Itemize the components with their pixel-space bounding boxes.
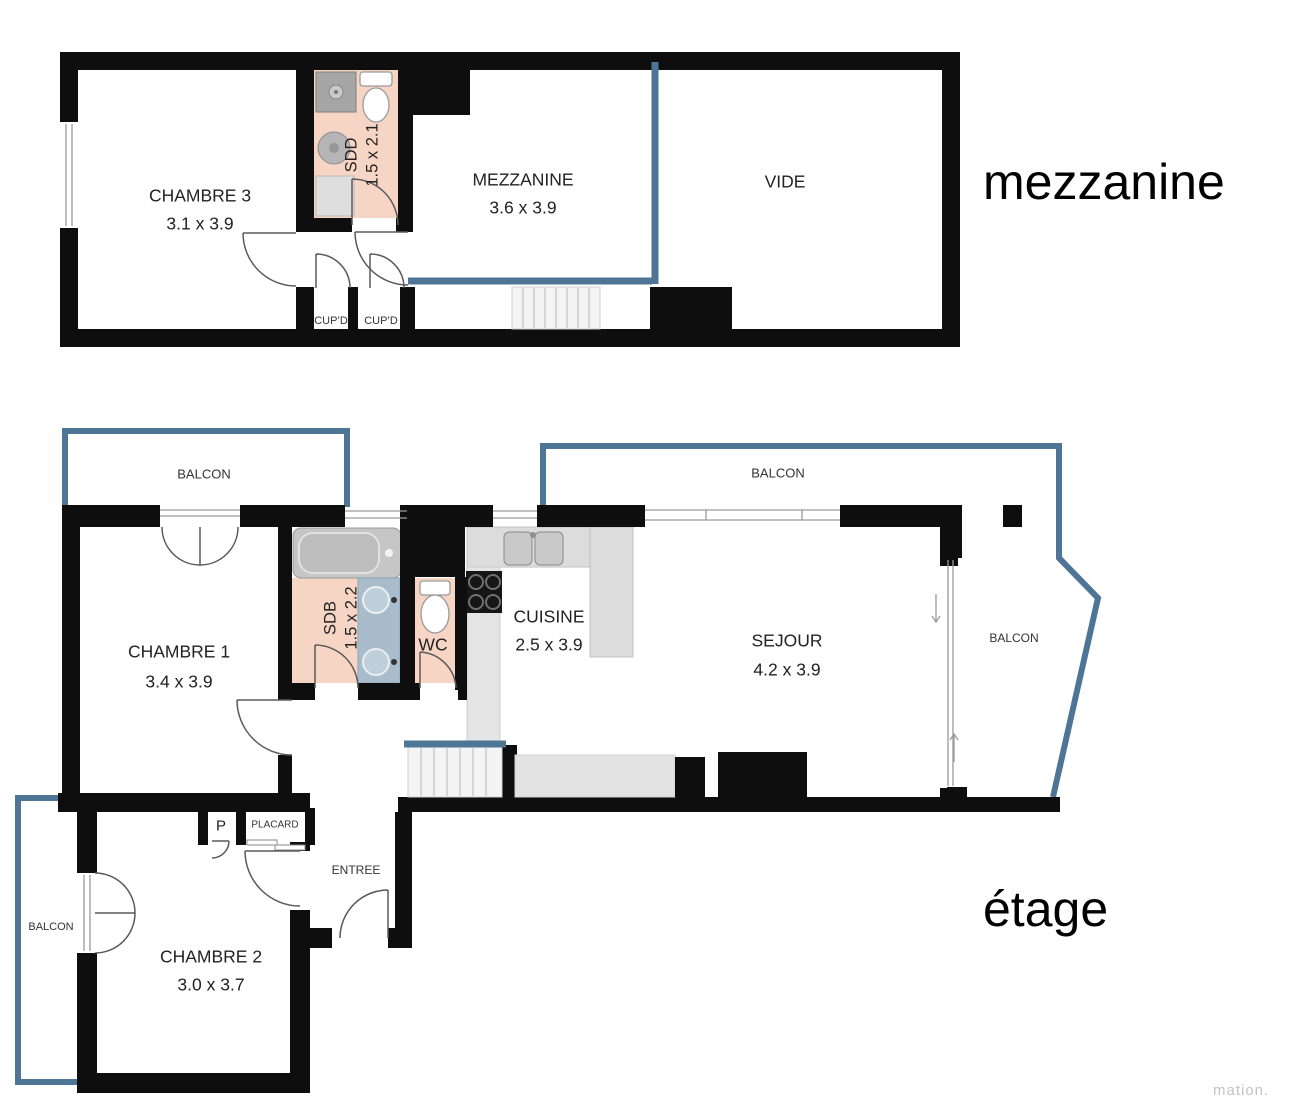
room-label-wc: WC xyxy=(418,635,447,656)
room-label-placard: PLACARD xyxy=(251,820,298,831)
room-dims-chambre2: 3.0 x 3.7 xyxy=(177,975,244,996)
stove-icon xyxy=(466,571,502,613)
entree-door xyxy=(340,890,388,938)
sdd-name: SDD xyxy=(341,123,362,186)
room-label-balcon-right: BALCON xyxy=(989,631,1038,645)
sdb-window xyxy=(345,511,407,518)
vanity-icon xyxy=(358,578,400,683)
room-label-p-closet: P xyxy=(216,818,226,835)
sdb-name: SDB xyxy=(320,586,341,649)
balcony-french-door xyxy=(162,527,238,565)
room-dims-mezzanine: 3.6 x 3.9 xyxy=(489,198,556,219)
chambre2-french-door xyxy=(95,873,135,953)
room-label-cupd-left: CUP’D xyxy=(314,315,348,327)
floor-title-etage: étage xyxy=(983,884,1108,934)
room-dims-chambre1: 3.4 x 3.9 xyxy=(145,672,212,693)
room-dims-sejour: 4.2 x 3.9 xyxy=(753,660,820,681)
room-label-chambre3: CHAMBRE 3 xyxy=(149,186,251,207)
balcony-door-frame xyxy=(160,510,240,516)
room-label-balcon-top-left: BALCON xyxy=(177,467,230,482)
etage-walls xyxy=(58,505,1060,1093)
room-label-sdb: SDB 1.5 x 2.2 xyxy=(320,586,361,649)
room-dims-cuisine: 2.5 x 3.9 xyxy=(515,635,582,656)
room-dims-chambre3: 3.1 x 3.9 xyxy=(166,214,233,235)
chambre1-door xyxy=(237,700,292,755)
floor-title-mezzanine: mezzanine xyxy=(983,157,1225,207)
kitchen-window xyxy=(493,511,537,518)
chambre2-window xyxy=(84,875,90,951)
chambre2-door xyxy=(245,851,300,906)
room-label-sejour: SEJOUR xyxy=(752,631,823,652)
stairs-etage xyxy=(404,744,506,797)
toilet-icon-mezzanine xyxy=(360,72,392,122)
room-label-vide: VIDE xyxy=(765,172,806,193)
chambre3-window xyxy=(60,122,78,228)
stairs-mezzanine xyxy=(512,287,600,329)
shower-icon xyxy=(316,72,356,112)
sdb-dims: 1.5 x 2.2 xyxy=(341,586,362,649)
balcon-bottom-left-border xyxy=(18,798,80,1082)
sliding-door-window xyxy=(948,560,953,786)
sdd-dims: 1.5 x 2.1 xyxy=(362,123,383,186)
etage-windows xyxy=(84,510,953,951)
watermark-text: mation. xyxy=(1213,1082,1269,1099)
bathtub-icon xyxy=(293,528,401,578)
room-label-mezzanine: MEZZANINE xyxy=(472,170,573,191)
placard-sliding-doors xyxy=(247,840,305,850)
room-label-balcon-left: BALCON xyxy=(28,921,73,933)
room-label-cuisine: CUISINE xyxy=(514,607,585,628)
sejour-window xyxy=(645,510,840,520)
room-label-sdd: SDD 1.5 x 2.1 xyxy=(341,123,382,186)
room-label-chambre1: CHAMBRE 1 xyxy=(128,642,230,663)
room-label-cupd-right: CUP’D xyxy=(364,315,398,327)
p-closet-door xyxy=(212,841,229,858)
room-label-entree: ENTREE xyxy=(332,863,381,877)
room-label-balcon-top-right: BALCON xyxy=(751,466,804,481)
sliding-arrows xyxy=(932,594,958,762)
toilet-icon-etage xyxy=(420,581,450,633)
floorplan-page: CHAMBRE 3 3.1 x 3.9 SDD 1.5 x 2.1 MEZZAN… xyxy=(0,0,1306,1110)
sejour-furniture xyxy=(515,752,807,797)
room-label-chambre2: CHAMBRE 2 xyxy=(160,947,262,968)
